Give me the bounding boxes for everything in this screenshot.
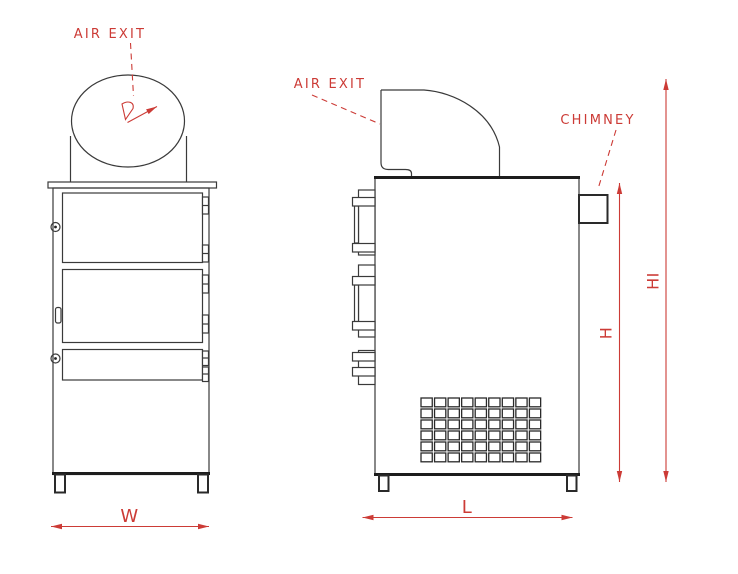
dimension-l: L [363, 497, 573, 518]
grille-cell [462, 453, 473, 462]
grille-cell [489, 398, 500, 407]
front-foot-left [55, 475, 65, 493]
hinge [203, 245, 209, 262]
annotation-air-exit-front: AIR EXIT [74, 27, 146, 96]
dimension-h-label: H [597, 327, 616, 340]
front-view: AIR EXIT W [48, 27, 217, 527]
grille-cell [462, 398, 473, 407]
fan-rotation-mark [122, 102, 157, 122]
grille-cell [502, 431, 513, 440]
door-hinges [203, 197, 209, 382]
side-view: AIR EXIT CHIMNEY L H HI [294, 77, 666, 518]
door-panel-2 [63, 270, 203, 343]
grille-cell [489, 442, 500, 451]
hinge [203, 351, 209, 366]
grille-cell [516, 420, 527, 429]
door-lock-top [51, 223, 60, 232]
hinge [203, 275, 209, 293]
front-foot-right [198, 475, 208, 493]
grille-cell [475, 409, 486, 418]
grille-cell [421, 420, 432, 429]
door-panel-1 [63, 193, 203, 263]
grille-cell [516, 453, 527, 462]
grille-cell [475, 431, 486, 440]
grille-cell [489, 409, 500, 418]
hinge [203, 197, 209, 214]
hinge-cluster-1 [353, 190, 376, 255]
grille-cell [516, 431, 527, 440]
grille-cell [421, 398, 432, 407]
chimney-label: CHIMNEY [560, 113, 635, 128]
grille-cell [502, 453, 513, 462]
cabinet-lid [48, 182, 217, 188]
hinge-cluster-2 [353, 265, 376, 337]
grille-cell [462, 431, 473, 440]
grille-cell [435, 431, 446, 440]
dimension-h: H [597, 183, 620, 482]
dimension-w: W [51, 506, 209, 527]
grille-cell [502, 409, 513, 418]
grille-cell [448, 431, 459, 440]
side-hinge-clusters [353, 190, 376, 385]
dimension-l-label: L [462, 497, 473, 518]
technical-drawing-page: AIR EXIT W [0, 0, 738, 574]
dimension-hi: HI [644, 79, 667, 482]
hinge-cluster-3 [353, 351, 376, 385]
dimension-hi-label: HI [644, 272, 663, 290]
grille-cell [421, 431, 432, 440]
grille-cell [435, 409, 446, 418]
side-body-outline [375, 178, 579, 475]
grille-cell [448, 409, 459, 418]
drawing-canvas: AIR EXIT W [0, 0, 738, 574]
grille-cell [502, 398, 513, 407]
grille-cell [529, 453, 540, 462]
grille-cell [489, 431, 500, 440]
grille-cell [502, 420, 513, 429]
grille-cell [448, 442, 459, 451]
side-foot-right [567, 476, 577, 492]
grille-cell [448, 398, 459, 407]
cabinet [48, 182, 217, 493]
annotation-air-exit-side: AIR EXIT [294, 77, 380, 124]
ventilation-grille [421, 398, 541, 462]
hinge [203, 315, 209, 333]
grille-cell [462, 420, 473, 429]
grille-cell [489, 453, 500, 462]
grille-cell [435, 398, 446, 407]
grille-cell [529, 398, 540, 407]
grille-cell [516, 442, 527, 451]
grille-cell [421, 409, 432, 418]
grille-cell [516, 409, 527, 418]
grille-cell [475, 442, 486, 451]
door-panel-3 [63, 350, 203, 381]
air-exit-front-label: AIR EXIT [74, 27, 146, 42]
grille-cell [475, 398, 486, 407]
grille-cell [529, 431, 540, 440]
grille-cell [475, 453, 486, 462]
chimney-stub [579, 195, 608, 223]
grille-cell [448, 453, 459, 462]
door-handle [56, 308, 62, 324]
grille-cell [435, 420, 446, 429]
grille-cell [502, 442, 513, 451]
fan-circle [72, 75, 185, 167]
air-exit-side-label: AIR EXIT [294, 77, 366, 92]
fan-housing [71, 75, 187, 182]
grille-cell [435, 453, 446, 462]
grille-cell [435, 442, 446, 451]
door-lock-bottom [51, 354, 60, 363]
grille-cell [529, 420, 540, 429]
grille-cell [475, 420, 486, 429]
hinge [203, 367, 209, 382]
air-duct-elbow [381, 90, 500, 177]
grille-cell [421, 453, 432, 462]
grille-cell [529, 442, 540, 451]
grille-cell [421, 442, 432, 451]
chimney-leader [598, 130, 616, 189]
grille-cell [529, 409, 540, 418]
side-foot-left [379, 476, 389, 492]
grille-cell [516, 398, 527, 407]
grille-cell [462, 409, 473, 418]
grille-cell [489, 420, 500, 429]
air-exit-side-leader [312, 95, 380, 124]
grille-cell [462, 442, 473, 451]
grille-cell [448, 420, 459, 429]
dimension-w-label: W [120, 506, 138, 527]
air-exit-front-leader [131, 43, 134, 96]
